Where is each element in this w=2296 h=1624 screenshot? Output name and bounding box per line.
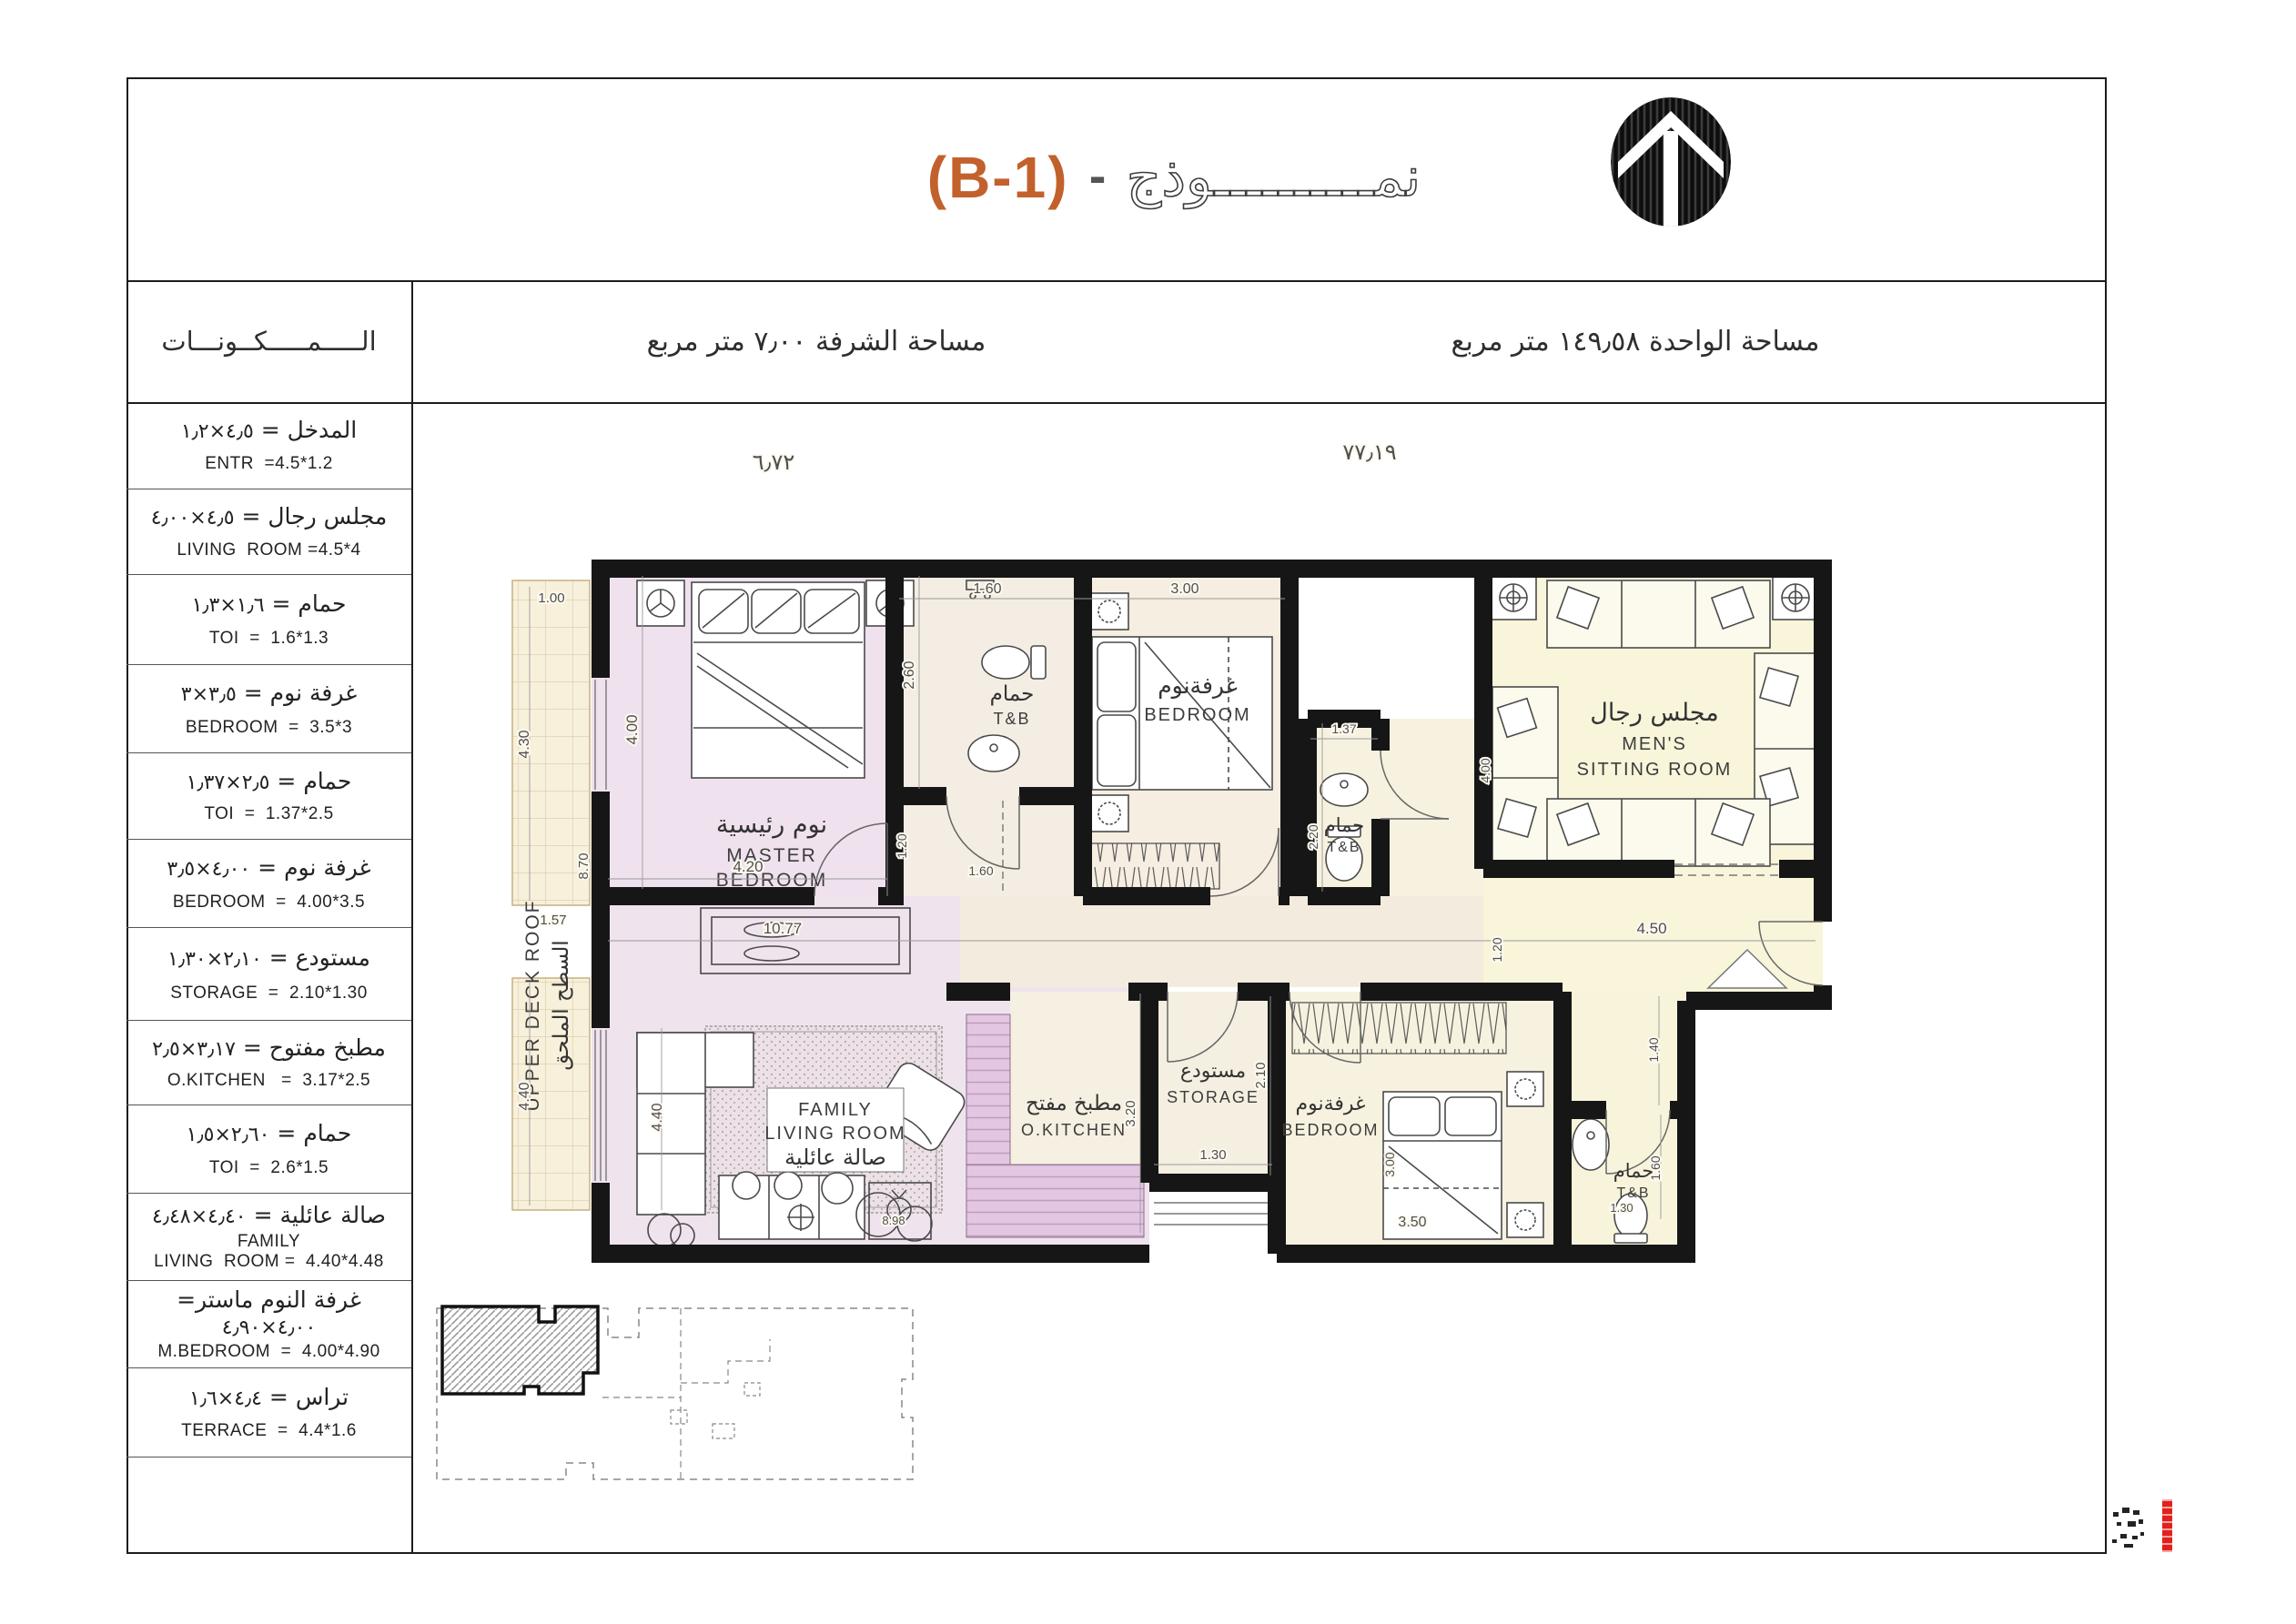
drawing-sheet: نوم رئيسية MASTER BEDROOM حمام T&B غرفةن… [0,0,2296,1624]
table-row: حمام = ٢٫٥×١٫٣٧ TOI = 1.37*2.5 [126,753,411,840]
table-row: حمام = ٢٫٦٠×١٫٥ TOI = 2.6*1.5 [126,1105,411,1194]
stamp-marks [2112,1508,2144,1548]
components-table: المدخل = ٤٫٥×١٫٢ ENTR =4.5*1.2 مجلس رجال… [126,402,411,1554]
header-separator-bottom [126,402,2107,404]
components-header: الـــــمـــــكــونـــات [126,280,411,402]
table-row: المدخل = ٤٫٥×١٫٢ ENTR =4.5*1.2 [126,402,411,489]
table-row: مجلس رجال = ٤٫٥×٤٫٠٠ LIVING ROOM =4.5*4 [126,489,411,575]
title-unit-code: (B-1) [927,144,1069,211]
title-model-arabic: نمــــــــــوذج [1127,146,1421,209]
table-row: حمام = ١٫٦×١٫٣ TOI = 1.6*1.3 [126,575,411,665]
red-stamp [2162,1499,2172,1552]
table-row: مستودع = ٢٫١٠×١٫٣٠ STORAGE = 2.10*1.30 [126,928,411,1021]
table-row: غرفة النوم ماستر= ٤٫٠٠×٤٫٩٠ M.BEDROOM = … [126,1281,411,1368]
table-row: غرفة نوم = ٣٫٥×٣ BEDROOM = 3.5*3 [126,665,411,753]
unit-area-text: مساحة الواحدة ١٤٩٫٥٨ متر مربع [1230,280,2040,402]
table-row-empty [126,1458,411,1554]
balcony-area-text: مساحة الشرفة ٧٫٠٠ متر مربع [411,280,1221,402]
title-block: نمــــــــــوذج - (B-1) [846,118,1502,237]
sidebar-divider [411,280,413,1554]
table-row: تراس = ٤٫٤×١٫٦ TERRACE = 4.4*1.6 [126,1368,411,1458]
table-row: صالة عائلية = ٤٫٤٠×٤٫٤٨ FAMILY LIVING RO… [126,1194,411,1281]
title-dash: - [1089,153,1107,202]
table-row: مطبخ مفتوح = ٣٫١٧×٢٫٥ O.KITCHEN = 3.17*2… [126,1021,411,1105]
table-row: غرفة نوم = ٤٫٠٠×٣٫٥ BEDROOM = 4.00*3.5 [126,840,411,928]
